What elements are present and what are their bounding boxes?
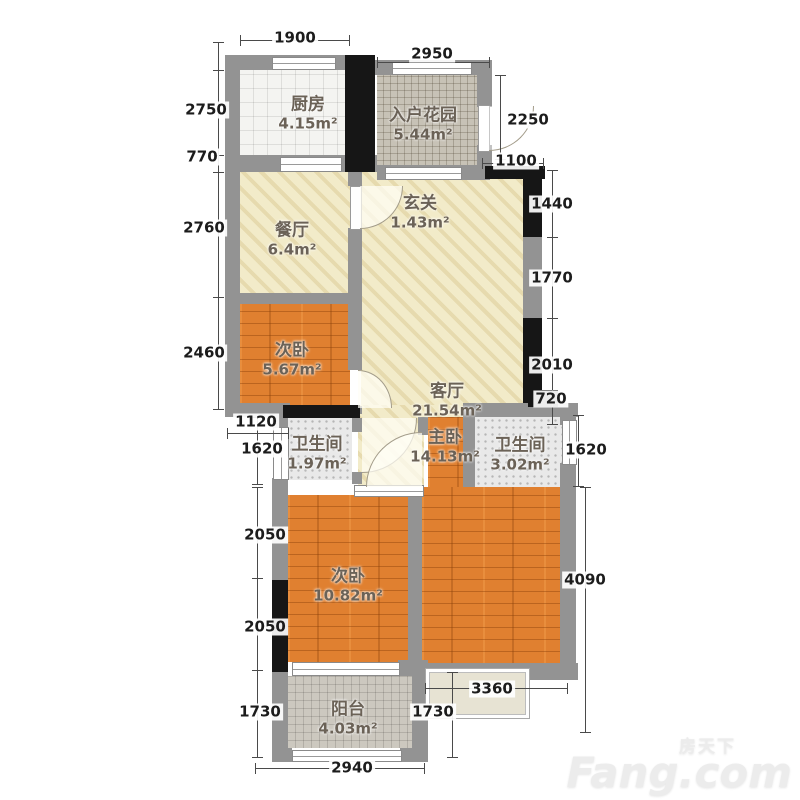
room-area: 5.67m² — [262, 361, 321, 379]
dim-label: 1100 — [493, 153, 539, 170]
dim-tick — [213, 70, 224, 71]
room-area: 5.44m² — [389, 126, 457, 144]
master-floor — [422, 487, 560, 663]
dim-label: 2750 — [183, 102, 229, 119]
room-name: 入户花园 — [389, 107, 457, 126]
room-label-bathroom1: 卫生间 1.97m² — [287, 436, 346, 473]
room-label-bedroom2a: 次卧 5.67m² — [262, 342, 321, 379]
dim-label: 2760 — [181, 220, 227, 237]
wall — [352, 472, 362, 484]
room-area: 14.13m² — [410, 448, 480, 466]
dim-line — [227, 433, 289, 434]
room-area: 6.4m² — [268, 241, 317, 259]
wall — [352, 418, 362, 432]
wall — [560, 463, 576, 672]
wall-black — [283, 405, 360, 418]
wall — [225, 293, 355, 304]
room-label-entry-garden: 入户花园 5.44m² — [389, 107, 457, 144]
wall-black — [345, 55, 375, 172]
dim-tick — [547, 318, 558, 319]
room-area: 10.82m² — [313, 587, 383, 605]
dim-tick — [213, 297, 224, 298]
dim-line — [585, 487, 586, 733]
bedroom2b-balcony-slider — [292, 662, 400, 676]
dim-label: 1120 — [233, 414, 279, 431]
room-area: 1.43m² — [390, 214, 449, 232]
dim-label: 1900 — [272, 30, 318, 47]
dim-label: 2050 — [242, 527, 288, 544]
dim-label: 2050 — [242, 619, 288, 636]
dim-label: 4090 — [562, 572, 608, 589]
wall — [408, 487, 422, 672]
room-label-bathroom2: 卫生间 3.02m² — [490, 437, 549, 474]
room-area: 4.03m² — [318, 720, 377, 738]
room-label-bedroom2b: 次卧 10.82m² — [313, 568, 383, 605]
watermark: 房天下 Fang.com — [566, 739, 792, 794]
room-area: 4.15m² — [278, 115, 337, 133]
kitchen-window — [272, 57, 336, 70]
room-area: 21.54m² — [412, 402, 482, 420]
room-name: 客厅 — [412, 383, 482, 402]
dim-label: 2460 — [181, 345, 227, 362]
room-name: 卫生间 — [490, 437, 549, 456]
dim-tick — [252, 578, 263, 579]
dim-tick — [252, 670, 263, 671]
wall — [272, 748, 292, 762]
garden-hall-window — [385, 167, 462, 180]
dim-label: 770 — [184, 149, 219, 166]
room-name: 次卧 — [262, 342, 321, 361]
room-name: 厨房 — [278, 96, 337, 115]
room-name: 卫生间 — [287, 436, 346, 455]
room-area: 1.97m² — [287, 455, 346, 473]
room-name: 主卧 — [410, 429, 480, 448]
wall — [348, 170, 362, 186]
room-name: 次卧 — [313, 568, 383, 587]
dim-label: 1620 — [239, 441, 285, 458]
floorplan: 1900 2950 2750 770 2760 2460 1120 1620 2… — [0, 0, 800, 800]
dim-tick — [547, 237, 558, 238]
room-area: 3.02m² — [490, 456, 549, 474]
dim-label: 2950 — [409, 46, 455, 63]
dim-label: 1620 — [563, 442, 609, 459]
wall — [348, 228, 362, 370]
dim-label: 3360 — [469, 681, 515, 698]
dim-label: 720 — [533, 391, 568, 408]
room-name: 阳台 — [318, 701, 377, 720]
dim-label: 2250 — [505, 112, 551, 129]
room-label-kitchen: 厨房 4.15m² — [278, 96, 337, 133]
room-label-dining: 餐厅 6.4m² — [268, 222, 317, 259]
garden-window — [392, 62, 472, 75]
room-label-hall: 玄关 1.43m² — [390, 195, 449, 232]
dim-tick — [213, 172, 224, 173]
dim-line — [500, 75, 501, 160]
dim-label: 1730 — [410, 704, 456, 721]
room-name: 玄关 — [390, 195, 449, 214]
kitchen-door-window — [280, 157, 342, 172]
watermark-logo: Fang.com — [566, 752, 792, 794]
dim-label: 1440 — [529, 196, 575, 213]
dim-label: 2940 — [329, 760, 375, 777]
dim-label: 2010 — [529, 357, 575, 374]
room-label-master: 主卧 14.13m² — [410, 429, 480, 466]
room-label-living: 客厅 21.54m² — [412, 383, 482, 420]
room-label-balcony: 阳台 4.03m² — [318, 701, 377, 738]
room-name: 餐厅 — [268, 222, 317, 241]
dim-label: 1730 — [237, 704, 283, 721]
dim-label: 1770 — [529, 270, 575, 287]
